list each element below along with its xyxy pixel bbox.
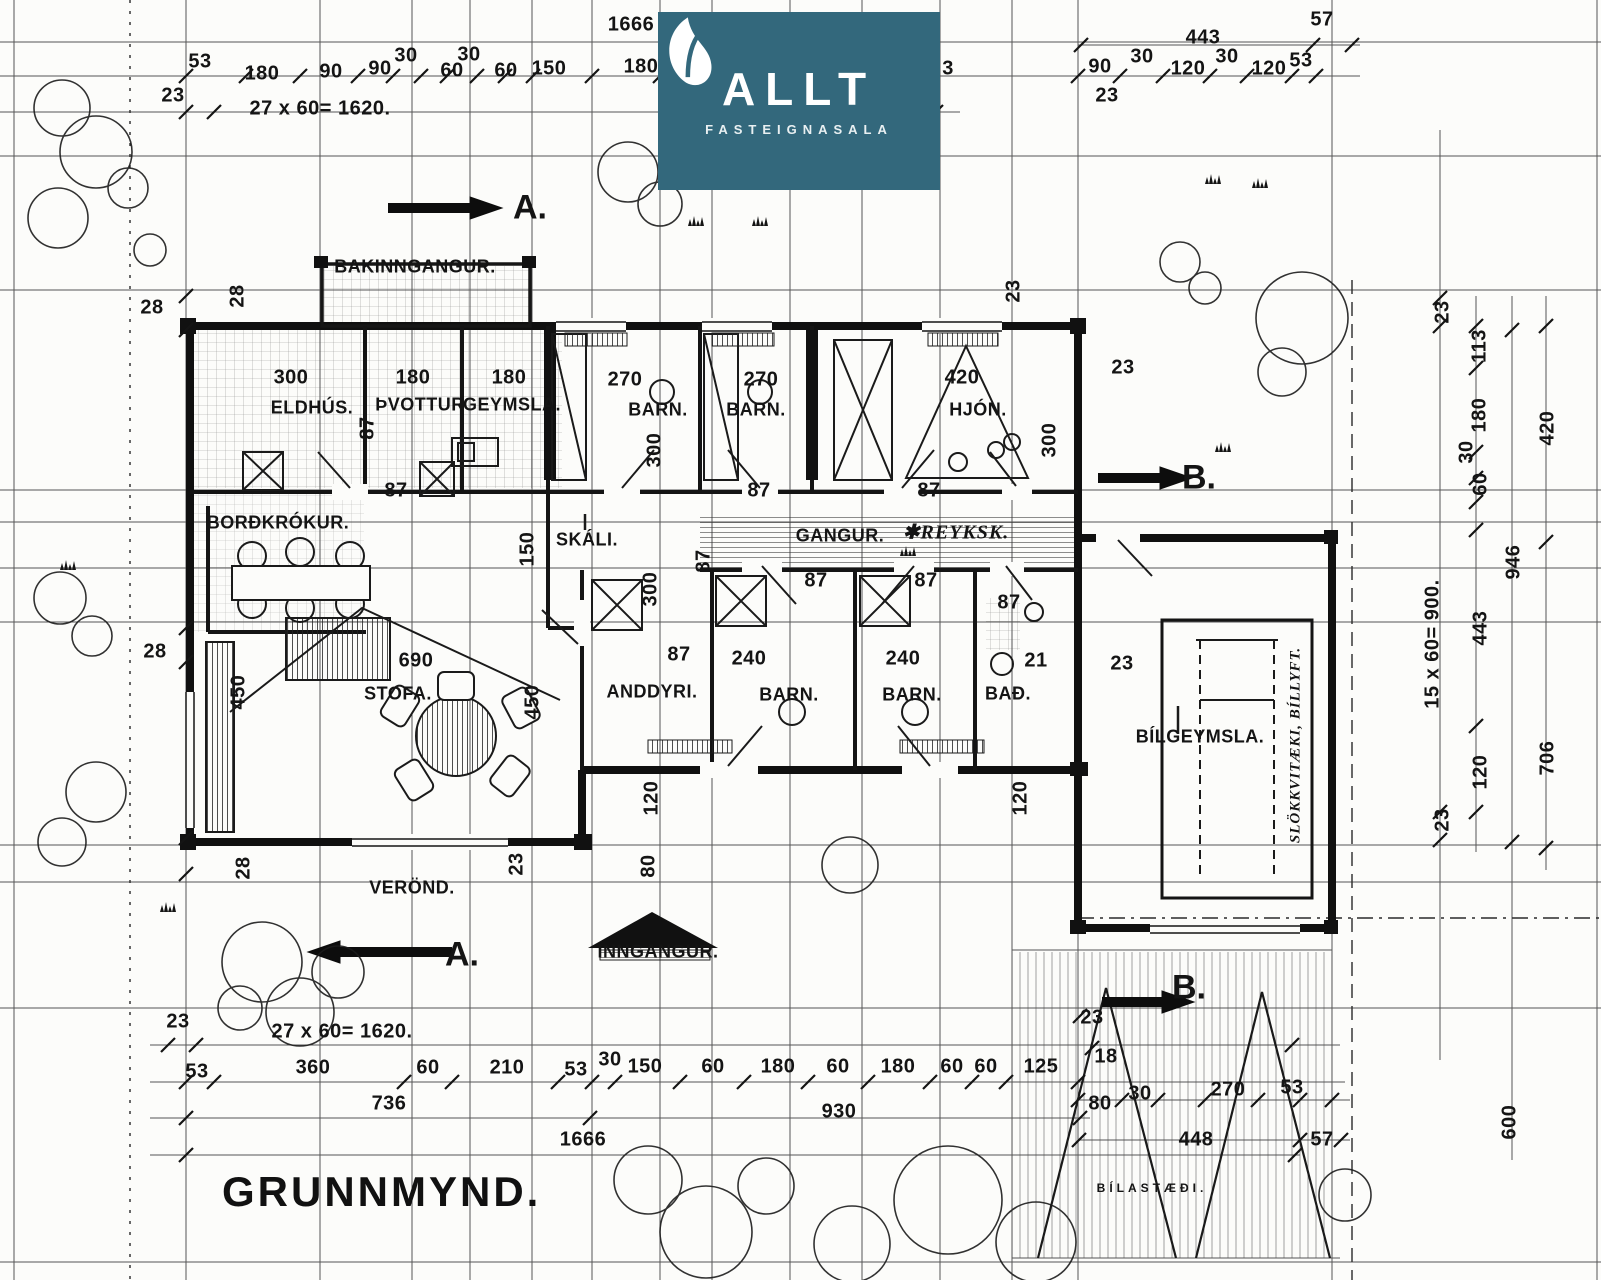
entrance-marker — [588, 912, 718, 960]
blueprint-page: BAKINNGANGUR.ELDHÚS.ÞVOTTURGEYMSLA.BARN.… — [0, 0, 1601, 1280]
floorplan-drawing — [0, 0, 1601, 1280]
drawing-title: GRUNNMYND. — [222, 1168, 541, 1216]
brand-name: ALLT — [722, 66, 876, 112]
brand-logo: ALLT FASTEIGNASALA — [658, 12, 940, 190]
brand-subtitle: FASTEIGNASALA — [705, 122, 893, 137]
leaf-icon — [658, 12, 714, 88]
